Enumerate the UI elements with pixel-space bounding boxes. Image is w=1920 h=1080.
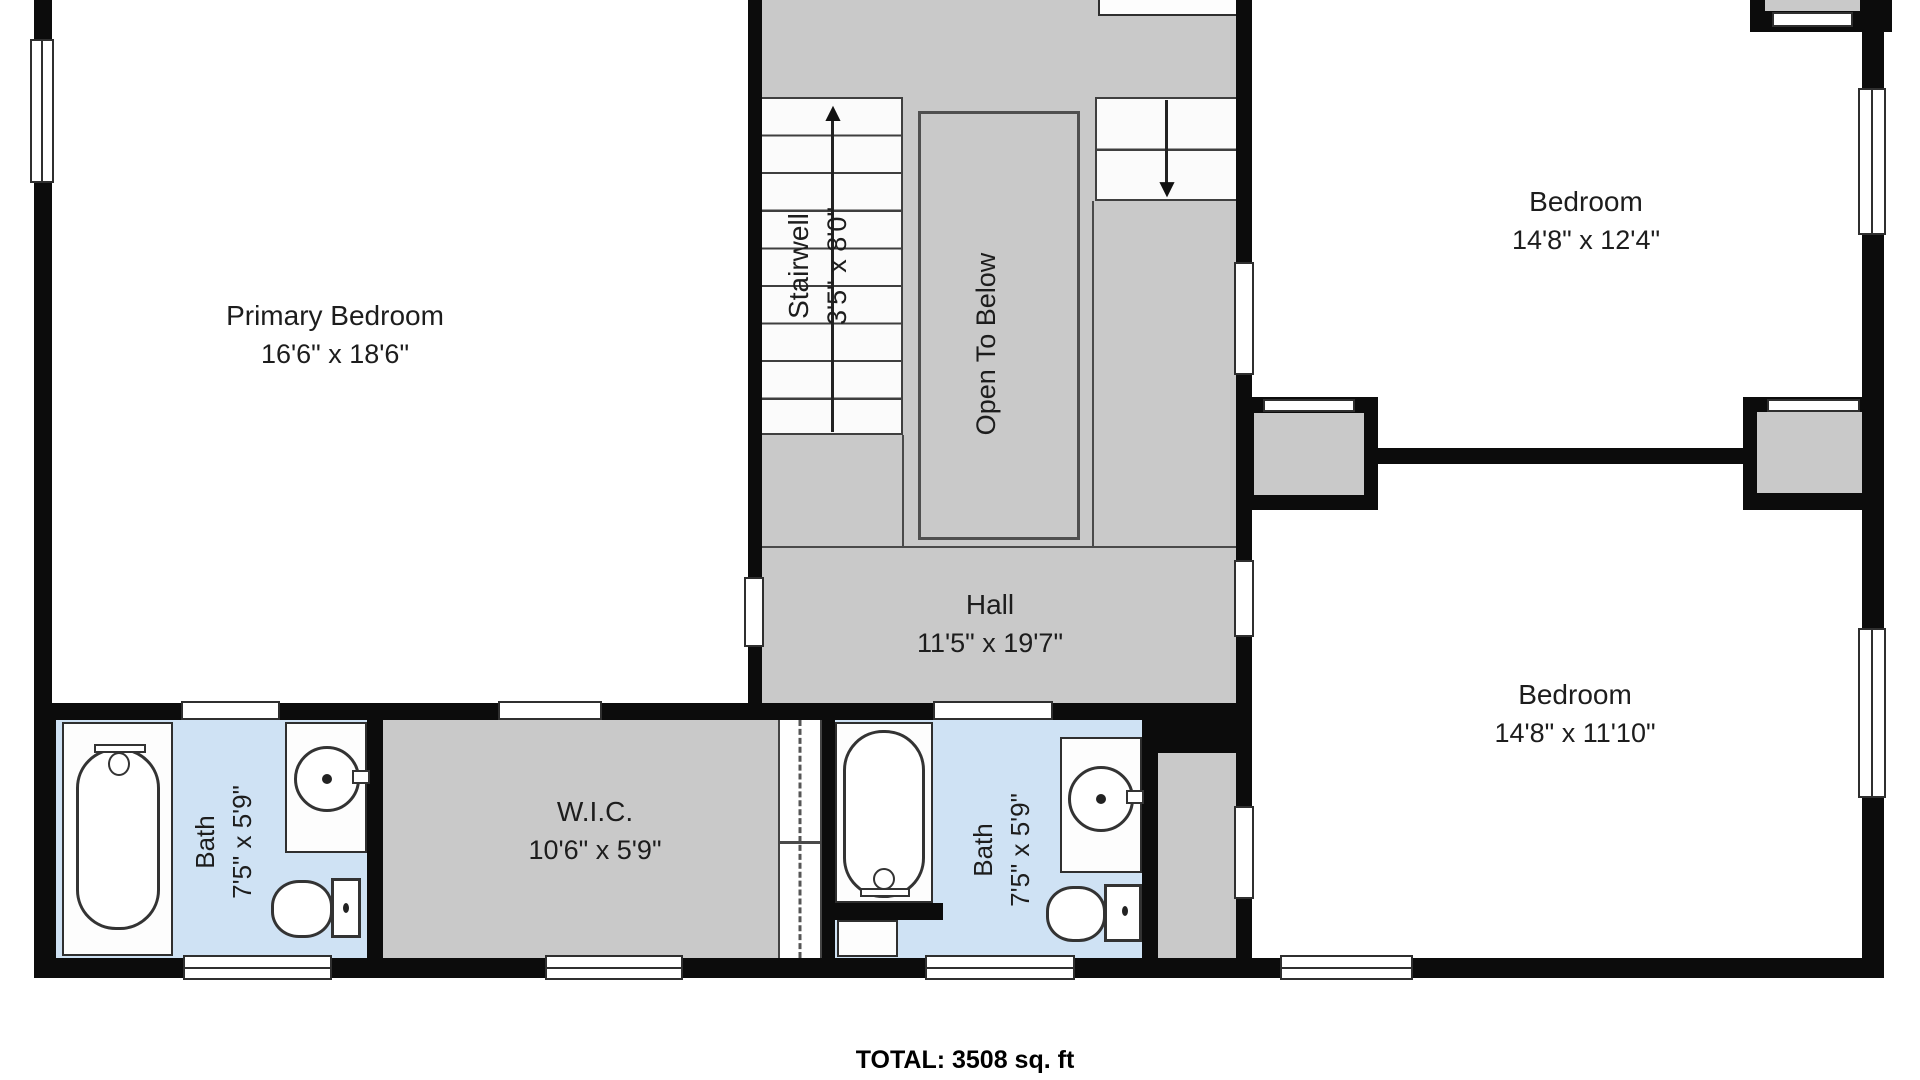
closet-right-fill	[1757, 412, 1862, 493]
toilet-left-button	[343, 903, 349, 913]
stair-frame-line-right	[1092, 201, 1094, 547]
bedroom-top-right-dims: 14'8" x 12'4"	[1512, 221, 1660, 260]
top-bump-opening	[1772, 12, 1853, 27]
wic-name: W.I.C.	[528, 792, 661, 831]
hall-name: Hall	[917, 585, 1063, 624]
wall-junction-block	[1142, 706, 1236, 753]
wic-strip-divider	[780, 841, 820, 844]
wall-bedrooms-left-a	[1236, 0, 1252, 262]
bath-right-dims: 7'5" x 5'9"	[1002, 793, 1039, 907]
door-bedroom-top-right	[1234, 262, 1254, 375]
door-bath-left	[181, 701, 280, 720]
faucet-spout-left	[108, 752, 130, 776]
wall-left-mid	[34, 183, 52, 703]
stairs-up-arrow-icon: ▲	[820, 99, 846, 125]
sink-right-tap	[1126, 790, 1144, 804]
primary-bedroom-name: Primary Bedroom	[226, 296, 444, 335]
label-bedroom-top-right: Bedroom 14'8" x 12'4"	[1512, 182, 1660, 260]
sink-right-drain	[1096, 794, 1106, 804]
wall-bedroom-divider	[1378, 448, 1743, 464]
wall-strip-right	[822, 720, 835, 958]
window-bottom-bath-left	[183, 955, 332, 980]
stairs-top-landing	[1098, 0, 1236, 16]
label-bedroom-bottom-right: Bedroom 14'8" x 11'10"	[1494, 675, 1655, 753]
toilet-left-bowl	[271, 880, 333, 938]
stairwell-name: Stairwell	[779, 207, 818, 325]
wall-right-b	[1862, 235, 1884, 628]
faucet-spout-right	[873, 868, 895, 890]
stairwell-dims: 3'5" x 8'0"	[818, 207, 857, 325]
floor-plan-canvas: ▲ ▼	[0, 0, 1920, 1080]
bath-left-name: Bath	[187, 785, 224, 899]
wall-bedrooms-left-c	[1236, 637, 1252, 806]
wall-left-lower	[34, 703, 56, 978]
open-to-below-name: Open To Below	[971, 253, 1001, 436]
stair-zone-bottom-line	[762, 546, 1236, 548]
wall-bath-left-right	[367, 720, 383, 958]
primary-bedroom-dims: 16'6" x 18'6"	[226, 335, 444, 374]
toilet-right-button	[1122, 906, 1128, 916]
stairs-down-arrow-icon: ▼	[1154, 175, 1180, 201]
label-hall: Hall 11'5" x 19'7"	[917, 585, 1063, 663]
window-left	[30, 39, 54, 183]
closet-left-opening	[1263, 399, 1355, 412]
window-bottom-wic	[545, 955, 683, 980]
sink-left-tap	[352, 770, 370, 784]
label-bath-left: Bath 7'5" x 5'9"	[187, 785, 261, 899]
wall-bedrooms-left-d	[1236, 899, 1252, 978]
stair-frame-line-left	[902, 435, 904, 547]
label-bath-right: Bath 7'5" x 5'9"	[965, 793, 1039, 907]
window-right-top	[1858, 88, 1886, 235]
wall-right-c	[1862, 798, 1884, 978]
wall-hall-left-upper	[748, 0, 762, 577]
closet-left-fill	[1254, 413, 1364, 495]
opening-hall-left	[744, 577, 764, 647]
label-open-to-below: Open To Below	[971, 253, 1001, 436]
bedroom-bottom-right-name: Bedroom	[1494, 675, 1655, 714]
hall-dims: 11'5" x 19'7"	[917, 624, 1063, 663]
window-right-bottom	[1858, 628, 1886, 798]
label-wic: W.I.C. 10'6" x 5'9"	[528, 792, 661, 870]
opening-hall-bedroom	[1234, 560, 1254, 637]
wic-dashed-strip	[778, 720, 822, 958]
bath-right-nook	[837, 920, 898, 957]
bedroom-entry-nook	[1158, 753, 1236, 958]
top-bump-fill	[1765, 0, 1860, 11]
wic-dashed-line	[799, 720, 802, 958]
wic-dims: 10'6" x 5'9"	[528, 831, 661, 870]
wall-right-a	[1862, 30, 1884, 88]
bath-right-name: Bath	[965, 793, 1002, 907]
window-bottom-bedroom	[1280, 955, 1413, 980]
bath-left-dims: 7'5" x 5'9"	[224, 785, 261, 899]
wall-bath-right-right	[1142, 753, 1158, 958]
total-area-label: TOTAL: 3508 sq. ft	[856, 1046, 1075, 1075]
door-wic	[498, 701, 602, 720]
wall-left-upper	[34, 0, 52, 39]
closet-right-opening	[1767, 399, 1860, 412]
door-bath-right	[933, 701, 1053, 720]
bedroom-bottom-right-dims: 14'8" x 11'10"	[1494, 714, 1655, 753]
window-bottom-bath-right	[925, 955, 1075, 980]
toilet-right-bowl	[1046, 886, 1106, 942]
bedroom-top-right-name: Bedroom	[1512, 182, 1660, 221]
sink-left-drain	[322, 774, 332, 784]
wall-bath-right-inner-bar	[830, 903, 943, 920]
door-bedroom-bottom-right	[1234, 806, 1254, 899]
label-stairwell: Stairwell 3'5" x 8'0"	[779, 207, 857, 325]
label-primary-bedroom: Primary Bedroom 16'6" x 18'6"	[226, 296, 444, 374]
